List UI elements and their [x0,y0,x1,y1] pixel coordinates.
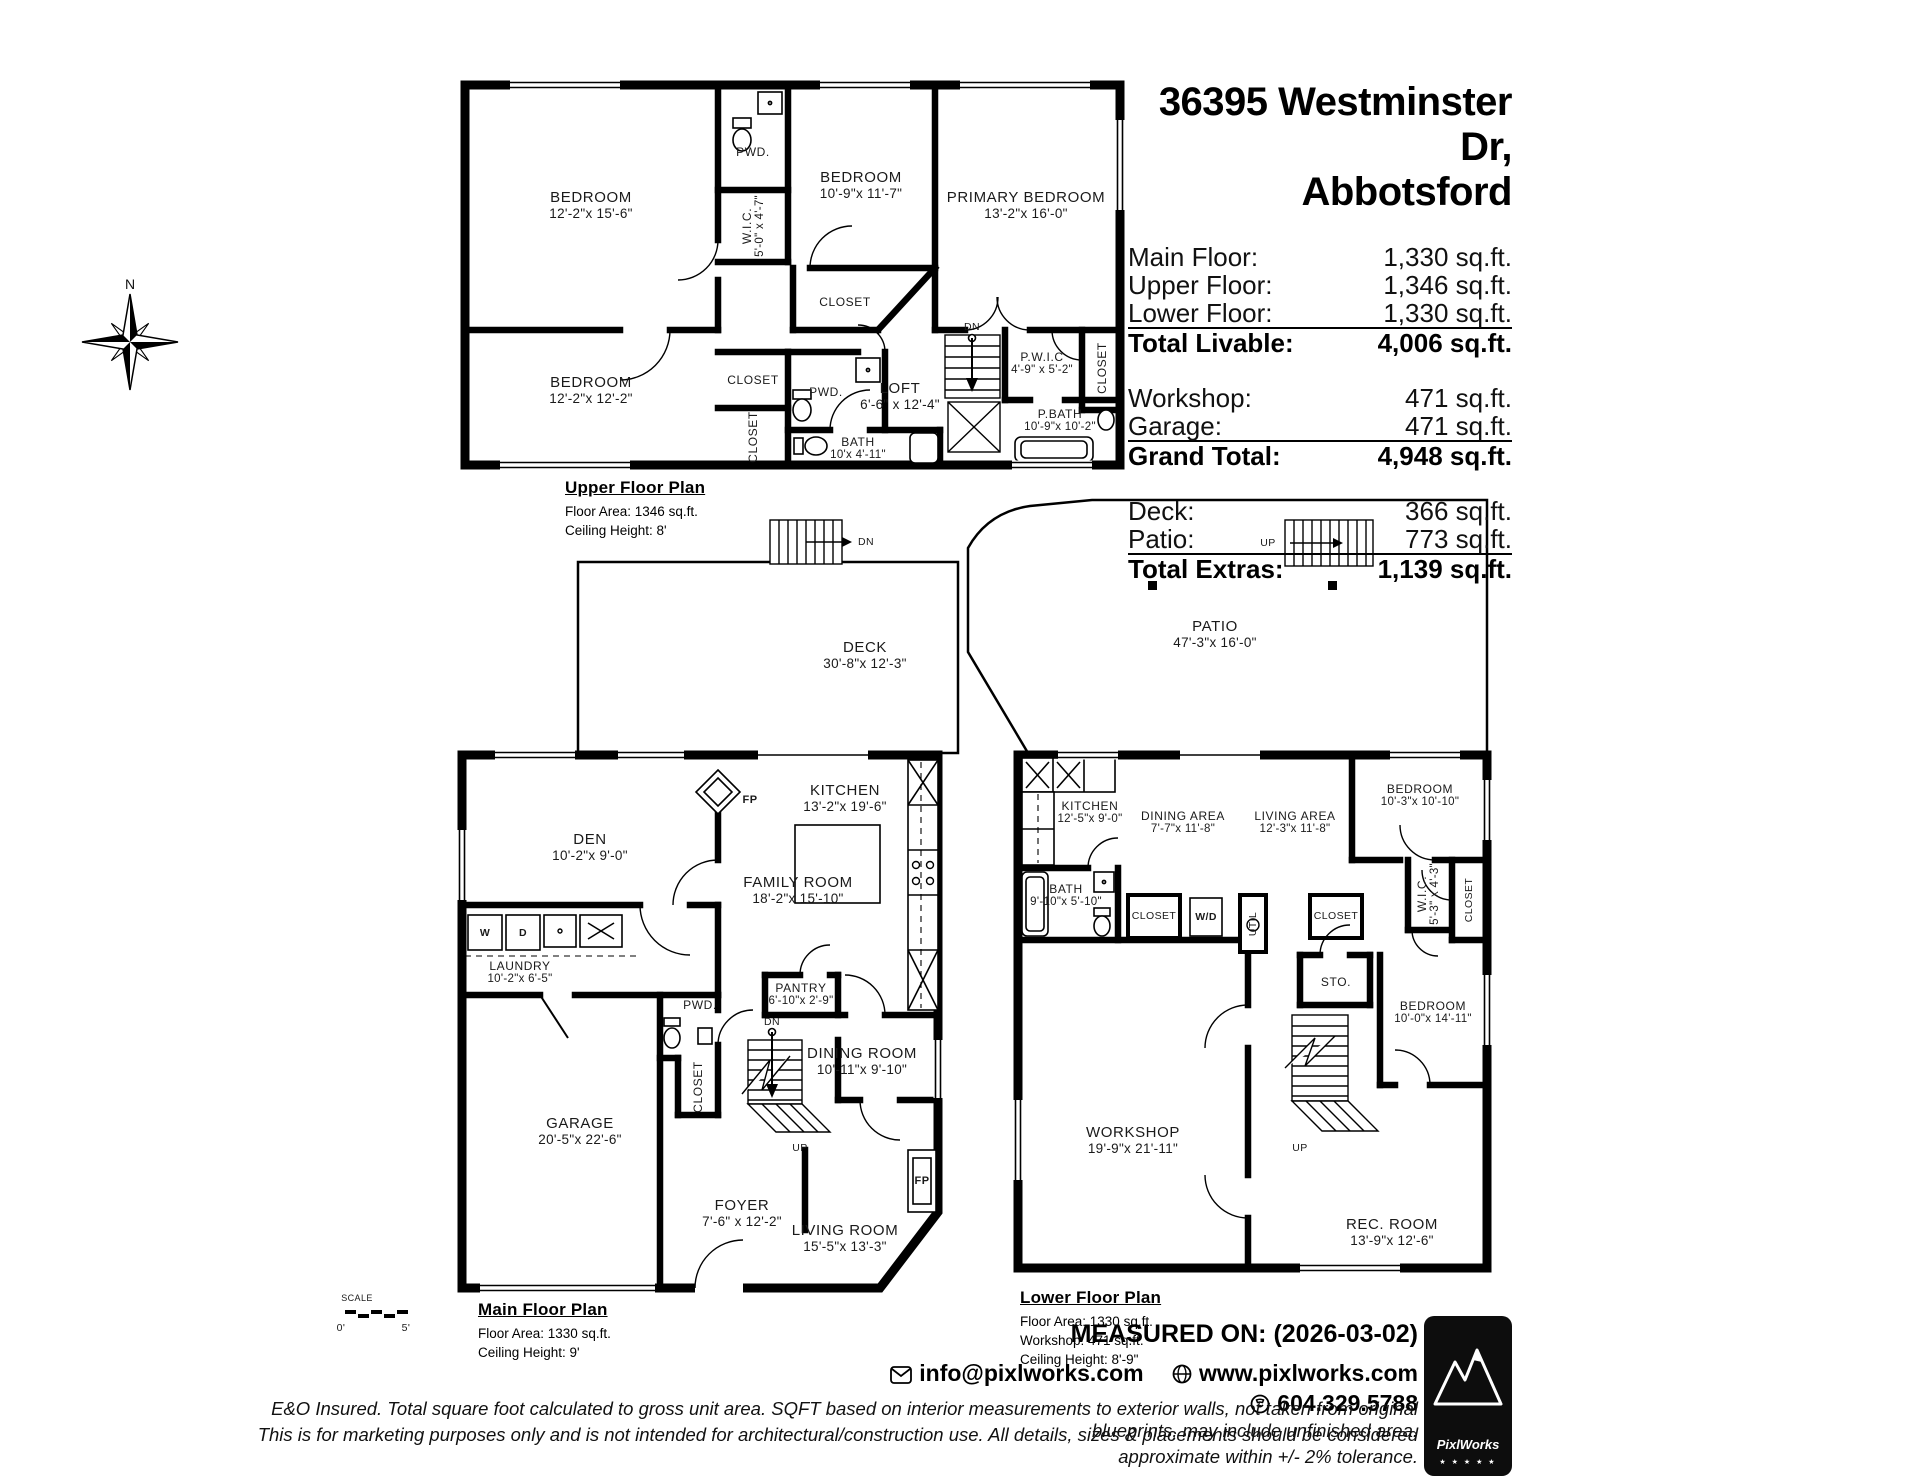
compass-rose [82,294,178,390]
room-label-living-room: LIVING ROOM 15'-5"x 13'-3" [792,1222,899,1254]
logo-brand-text: PixlWorks [1437,1437,1500,1452]
measured-on-label: MEASURED ON: (2026-03-02) [1030,1320,1418,1349]
email-icon [890,1363,912,1390]
room-label-closet3-lower: CLOSET [1463,878,1475,922]
contact-website[interactable]: www.pixlworks.com [1199,1360,1418,1386]
upper-plan-caption: Upper Floor Plan Floor Area: 1346 sq.ft.… [565,478,705,541]
room-label-family-room: FAMILY ROOM 18'-2"x 15'-10" [743,874,852,906]
room-label-pwd-main: PWD. [683,998,717,1012]
dryer-label: D [519,927,527,939]
room-label-loft: LOFT 6'-6" x 12'-4" [860,380,940,412]
fireplace-label-main: FP [742,794,757,806]
livable-area-table: Main Floor:1,330 sq.ft. Upper Floor:1,34… [1128,243,1512,357]
scale-end-label: 5' [402,1322,411,1334]
globe-icon [1172,1363,1192,1390]
room-label-bedroom3: BEDROOM 12'-2"x 12'-2" [549,374,632,406]
area-row-workshop: Workshop:471 sq.ft. [1128,384,1512,412]
stairs-up-label-lower: UP [1292,1142,1307,1154]
room-label-dining-area: DINING AREA 7'-7"x 11'-8" [1141,809,1225,835]
room-label-pwd2: PWD. [809,385,843,399]
room-label-dining-room: DINING ROOM 10'-11"x 9'-10" [807,1045,917,1077]
room-label-garage: GARAGE 20'-5"x 22'-6" [538,1115,621,1147]
room-label-closet-right: CLOSET [1095,342,1109,394]
area-row-garage: Garage:471 sq.ft. [1128,412,1512,440]
room-label-living-area: LIVING AREA 12'-3"x 11'-8" [1254,809,1335,835]
room-label-closet-main: CLOSET [691,1061,705,1113]
room-label-bedroom-lower1: BEDROOM 10'-3"x 10'-10" [1381,782,1459,808]
area-row-total-extras: Total Extras:1,139 sq.ft. [1128,553,1512,583]
contact-email[interactable]: info@pixlworks.com [919,1360,1143,1386]
room-label-pwd1: PWD. [736,145,770,159]
header: 36395 Westminster Dr, Abbotsford Main Fl… [1128,80,1512,583]
room-label-laundry: LAUNDRY 10'-2"x 6'-5" [487,959,552,985]
wd-label-lower: W/D [1195,911,1217,923]
room-label-deck: DECK 30'-8"x 12'-3" [823,639,906,671]
area-row-lower-floor: Lower Floor:1,330 sq.ft. [1128,299,1512,327]
room-label-bedroom1: BEDROOM 12'-2"x 15'-6" [549,189,632,221]
area-row-deck: Deck:366 sq.ft. [1128,497,1512,525]
stairs-dn-label-main: DN [764,1016,780,1028]
room-label-closet-bedroom2: CLOSET [819,295,871,309]
room-label-bath-upper: BATH 10'x 4'-11" [830,435,886,461]
room-label-rec-room: REC. ROOM 13'-9"x 12'-6" [1346,1216,1438,1248]
room-label-bedroom-lower2: BEDROOM 10'-0"x 14'-11" [1394,999,1472,1025]
page-title-line2: Abbotsford [1128,170,1512,215]
logo-stars: ★ ★ ★ ★ ★ [1439,1458,1496,1466]
room-label-storage: STO. [1321,975,1351,989]
room-label-pwic: P.W.I.C 4'-9" x 5'-2" [1011,350,1073,376]
area-row-patio: Patio:773 sq.ft. [1128,525,1512,553]
util-label: UTIL [1247,912,1259,936]
area-row-main-floor: Main Floor:1,330 sq.ft. [1128,243,1512,271]
room-label-foyer: FOYER 7'-6" x 12'-2" [702,1197,782,1229]
disclaimer-line2: This is for marketing purposes only and … [186,1424,1418,1468]
page-title-line1: 36395 Westminster Dr, [1128,80,1512,170]
room-label-patio: PATIO 47'-3"x 16'-0" [1173,618,1256,650]
room-label-wic-lower: W.I.C. 5'-3" x 4'-3" [1415,863,1441,925]
scale-label: SCALE [341,1293,373,1303]
floorplan-linework [0,0,1920,1484]
mountain-icon [1429,1324,1507,1416]
room-label-closet1-lower: CLOSET [1132,910,1176,922]
area-row-total-livable: Total Livable:4,006 sq.ft. [1128,327,1512,357]
stairs-dn-label-upper: DN [964,321,980,333]
room-label-den: DEN 10'-2"x 9'-0" [552,831,628,863]
deck-dn-label: DN [858,536,874,548]
room-label-closet-a: CLOSET [727,373,779,387]
scale-start-label: 0' [337,1322,346,1334]
scale-bar [345,1310,408,1318]
room-label-closet-b: CLOSET [746,411,760,463]
stairs-up-label-main: UP [792,1142,807,1154]
extras-area-table: Deck:366 sq.ft. Patio:773 sq.ft. Total E… [1128,497,1512,583]
main-plan-caption: Main Floor Plan Floor Area: 1330 sq.ft. … [478,1300,611,1363]
room-label-kitchen-main: KITCHEN 13'-2"x 19'-6" [803,782,886,814]
area-row-upper-floor: Upper Floor:1,346 sq.ft. [1128,271,1512,299]
compass-north-label: N [125,276,135,292]
washer-label: W [480,927,490,939]
pixlworks-logo: PixlWorks ★ ★ ★ ★ ★ [1424,1316,1512,1476]
garage-area-table: Workshop:471 sq.ft. Garage:471 sq.ft. Gr… [1128,384,1512,470]
fireplace-label-living: FP [914,1175,929,1187]
room-label-kitchen-lower: KITCHEN 12'-5"x 9'-0" [1057,799,1122,825]
room-label-closet2-lower: CLOSET [1314,910,1358,922]
room-label-bedroom2: BEDROOM 10'-9"x 11'-7" [820,169,902,201]
room-label-wic-upper: W.I.C. 5'-0" x 4'-7" [740,195,766,257]
room-label-pantry: PANTRY 6'-10"x 2'-9" [768,981,833,1007]
room-label-primary-bedroom: PRIMARY BEDROOM 13'-2"x 16'-0" [947,189,1105,221]
area-row-grand-total: Grand Total:4,948 sq.ft. [1128,440,1512,470]
room-label-bath-lower: BATH 9'-10"x 5'-10" [1030,882,1102,908]
room-label-pbath: P.BATH 10'-9"x 10'-2" [1024,407,1096,433]
room-label-workshop: WORKSHOP 19'-9"x 21'-11" [1086,1124,1180,1156]
